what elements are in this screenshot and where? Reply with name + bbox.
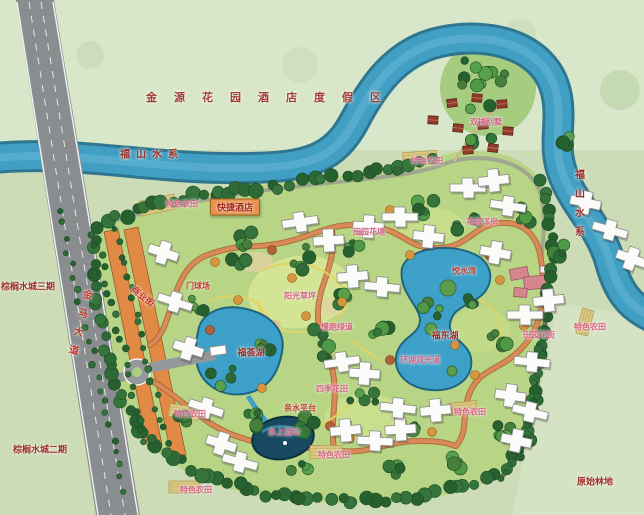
farm-plot-east: 特色农田 [574, 322, 606, 333]
duplex-villas: 双拼别墅 [470, 117, 502, 128]
sunshine-lawn: 阳光草坪 [284, 291, 316, 302]
label-layer: 金源花园酒店度假区福山水系福山水系棕榈水城三期棕榈水城二期金马大道特色农田快捷酒… [0, 0, 644, 515]
palm-water-city-phase2: 棕榈水城二期 [13, 443, 67, 456]
river-name-east: 福山水系 [571, 169, 586, 245]
palm-water-city-phase3: 棕榈水城三期 [1, 280, 55, 293]
farm-plot-southwest: 特色农田 [174, 409, 206, 420]
express-hotel: 快捷酒店 [210, 199, 260, 216]
waterfront-platform: 亲水平台 [284, 403, 316, 414]
jinma-avenue: 金马大道 [62, 287, 95, 364]
primeval-forest: 原始林地 [577, 475, 613, 488]
master-plan-page: 金源花园酒店度假区福山水系福山水系棕榈水城三期棕榈水城二期金马大道特色农田快捷酒… [0, 0, 644, 515]
farm-plot-southeast: 特色农田 [454, 407, 486, 418]
lakeside-club: 悦水湾 [452, 266, 476, 277]
garden-houses: 花园洋房 [466, 217, 498, 228]
lake-tour-path: 环湖观光道 [400, 355, 440, 366]
east-lake-name: 福东湖 [431, 329, 458, 342]
water-sports: 水上运动 [268, 427, 300, 438]
commercial-street: 商业街 [128, 283, 157, 310]
west-lake-name: 福荟湖 [237, 346, 264, 359]
farm-plot-south: 特色农田 [318, 450, 350, 461]
jogging-greenway: 慢跑绿道 [321, 322, 353, 333]
farm-plot-north: 特色农田 [411, 156, 443, 167]
four-seasons-flower-field: 四季花田 [316, 384, 348, 395]
pastoral-flower-street: 田园花街 [523, 330, 555, 341]
gateball-court: 门球场 [186, 281, 210, 292]
farm-plot-northwest: 特色农田 [166, 199, 198, 210]
resort-area-title: 金源花园酒店度假区 [146, 89, 398, 105]
river-name-west: 福山水系 [120, 146, 184, 161]
farm-plot-bottom: 特色农田 [180, 485, 212, 496]
pastoral-flower-border: 田园花境 [353, 227, 385, 238]
